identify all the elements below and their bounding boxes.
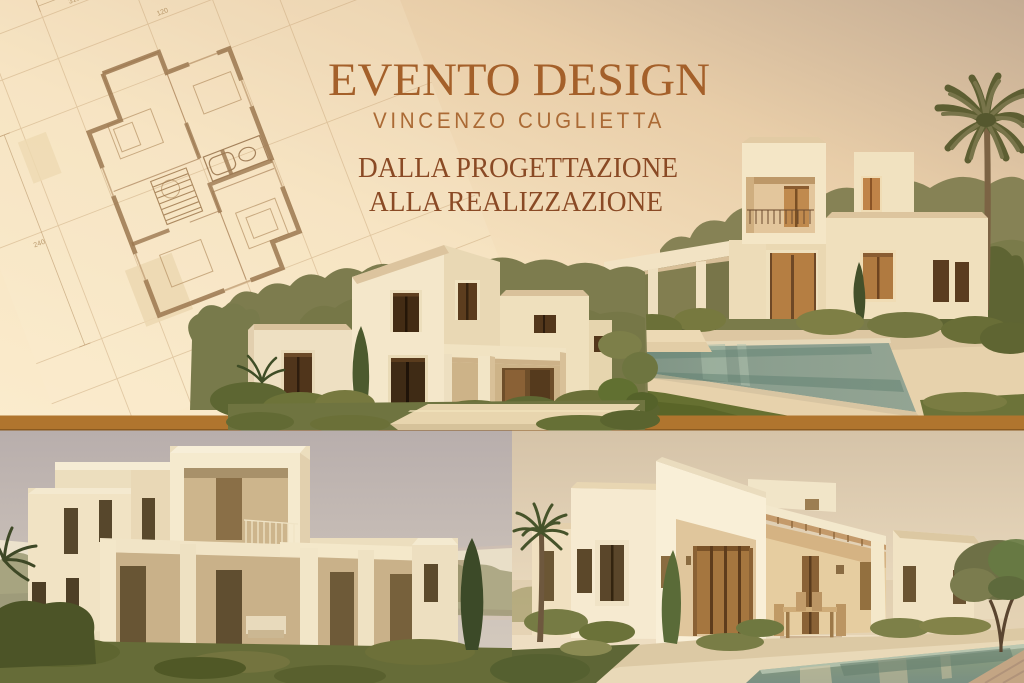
svg-text:ALLA REALIZZAZIONE: ALLA REALIZZAZIONE: [369, 187, 663, 218]
svg-text:VINCENZO CUGLIETTA: VINCENZO CUGLIETTA: [373, 108, 665, 133]
svg-text:DALLA PROGETTAZIONE: DALLA PROGETTAZIONE: [358, 153, 678, 184]
svg-text:EVENTO DESIGN: EVENTO DESIGN: [328, 54, 710, 106]
